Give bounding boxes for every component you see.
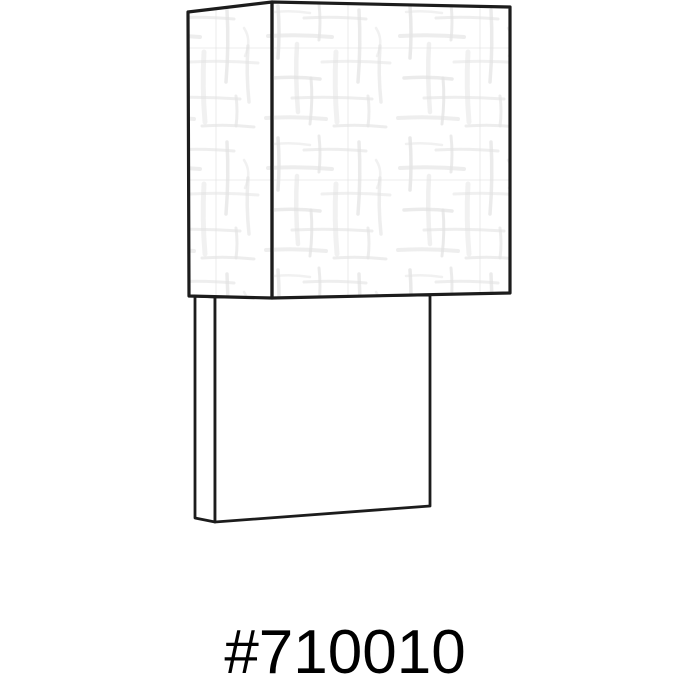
shade-front-face — [272, 2, 510, 298]
shade-left-face — [188, 2, 272, 298]
backplate-side-face — [195, 296, 215, 522]
product-number: #710010 — [224, 618, 465, 687]
sconce-backplate — [195, 295, 430, 522]
backplate-front-face — [215, 295, 430, 522]
sconce-line-drawing: #710010 — [0, 0, 700, 700]
sconce-shade — [188, 2, 510, 298]
product-image-canvas: #710010 — [0, 0, 700, 700]
